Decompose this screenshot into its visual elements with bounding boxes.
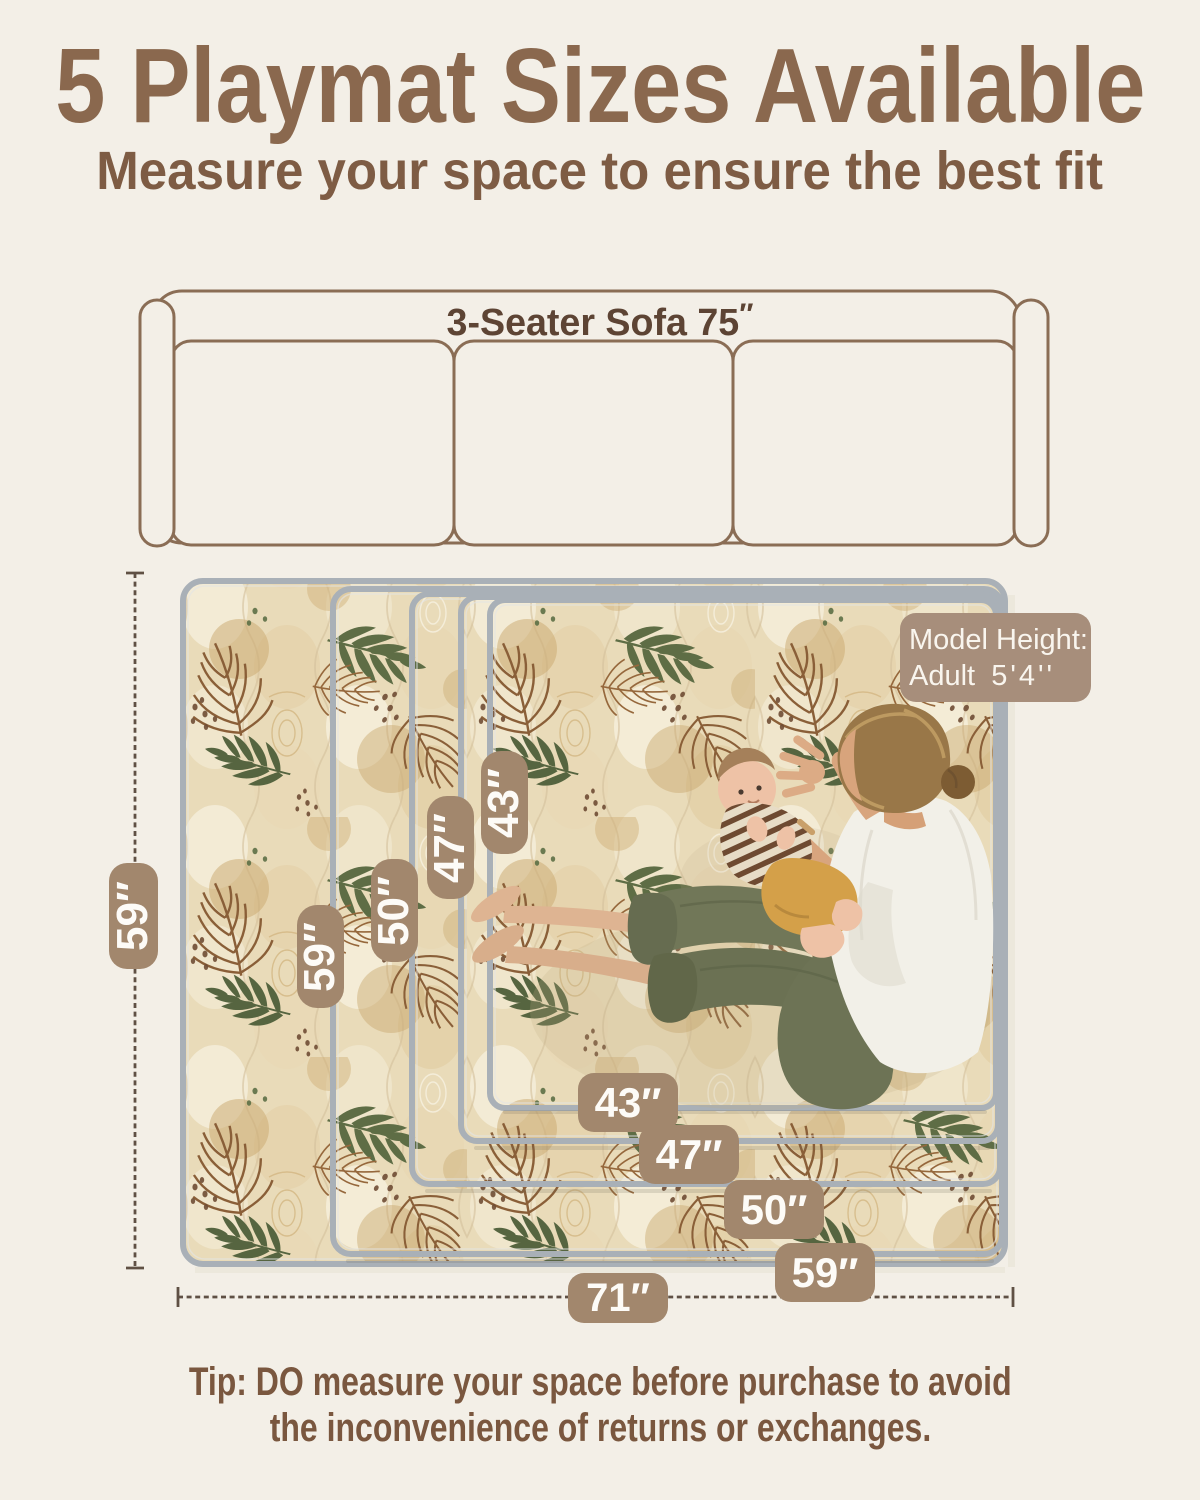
svg-text:3-Seater Sofa 75″: 3-Seater Sofa 75″ xyxy=(447,298,754,344)
